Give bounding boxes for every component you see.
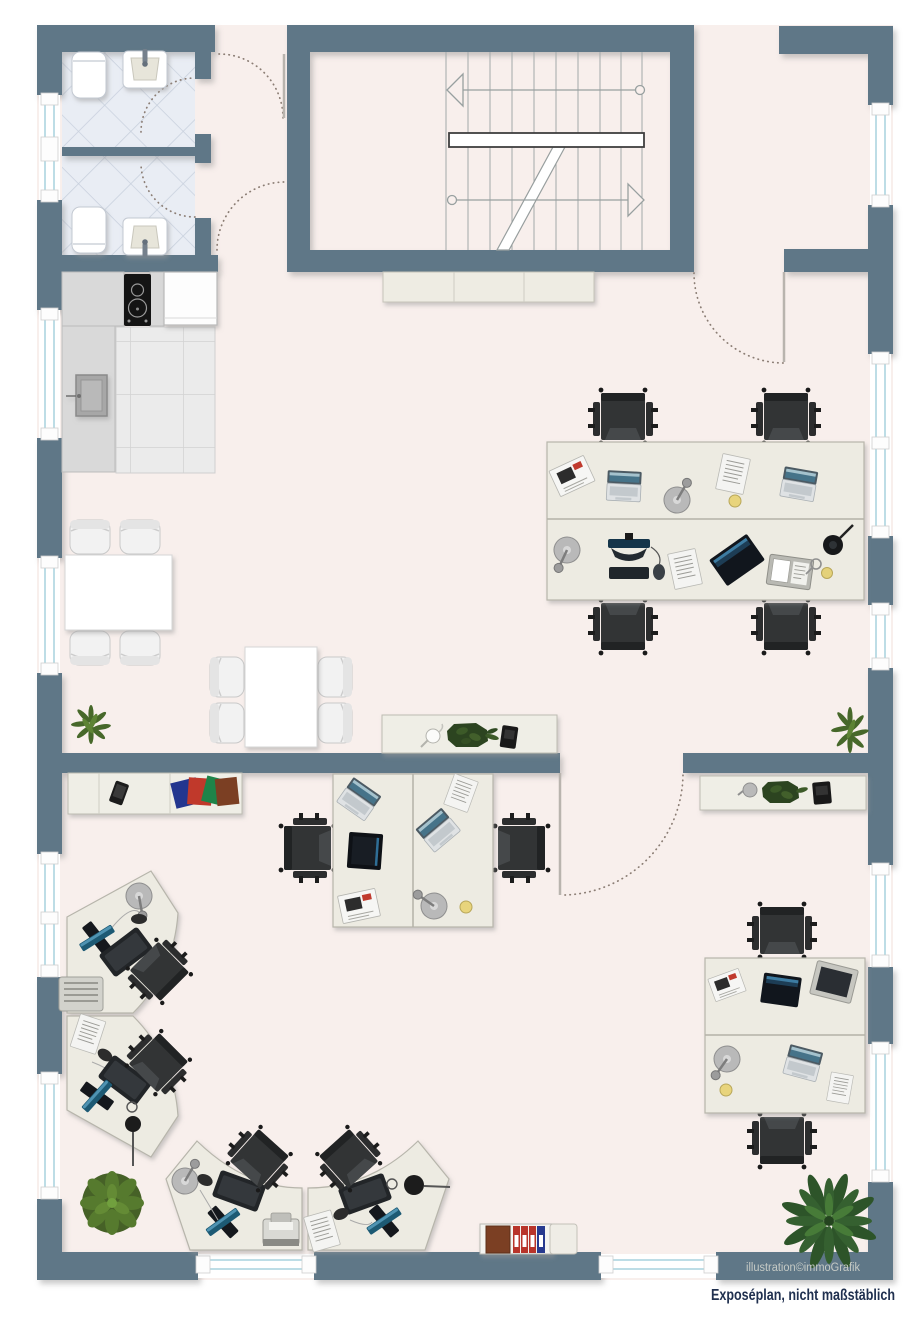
svg-text:Exposéplan, nicht maßstäblich: Exposéplan, nicht maßstäblich [711, 1287, 895, 1304]
svg-text:illustration©immoGrafik: illustration©immoGrafik [746, 1262, 860, 1274]
